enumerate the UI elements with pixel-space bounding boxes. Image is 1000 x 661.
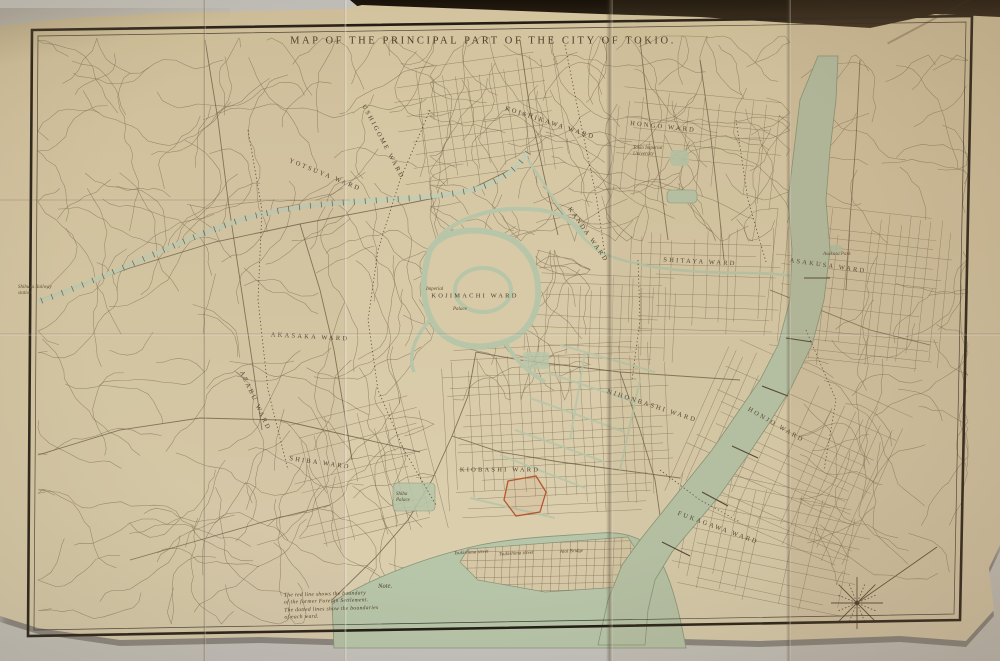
street-line bbox=[835, 451, 898, 538]
grid-street bbox=[611, 106, 619, 183]
grid-street bbox=[451, 362, 458, 490]
street-line bbox=[293, 38, 364, 90]
street-line bbox=[274, 543, 309, 589]
photograph-of-folded-map: MAP OF THE PRINCIPAL PART OF THE CITY OF… bbox=[0, 0, 1000, 661]
street-line bbox=[282, 82, 331, 128]
street-line bbox=[38, 538, 120, 586]
grid-street bbox=[415, 70, 431, 175]
street-line bbox=[244, 268, 318, 314]
street-line bbox=[314, 289, 403, 379]
street-line bbox=[101, 386, 163, 425]
grid-street bbox=[809, 419, 863, 538]
grid-street bbox=[472, 490, 650, 500]
street-line bbox=[744, 209, 778, 241]
street-line bbox=[120, 173, 179, 291]
grid-street bbox=[539, 281, 662, 286]
street-line bbox=[218, 350, 300, 451]
grid-street bbox=[663, 287, 666, 361]
street-line bbox=[194, 519, 307, 612]
street-line bbox=[859, 445, 925, 551]
street-line bbox=[100, 536, 180, 602]
street-line bbox=[38, 189, 77, 290]
grid-street bbox=[489, 378, 496, 490]
grid-street bbox=[799, 499, 823, 610]
street-line bbox=[358, 255, 395, 359]
grid-street bbox=[447, 385, 668, 397]
grid-street bbox=[677, 581, 840, 617]
street-line bbox=[896, 66, 958, 170]
main-road bbox=[846, 60, 860, 290]
street-line bbox=[141, 174, 238, 295]
main-road bbox=[640, 40, 668, 240]
grid-street bbox=[503, 69, 516, 159]
street-line bbox=[156, 358, 205, 372]
street-line bbox=[85, 173, 170, 197]
street-line bbox=[430, 176, 516, 236]
moat-arm bbox=[412, 318, 432, 372]
street-line bbox=[463, 340, 510, 400]
street-line bbox=[326, 230, 434, 277]
shinobazu-pond bbox=[667, 190, 697, 203]
street-line bbox=[912, 55, 968, 90]
street-line bbox=[334, 148, 416, 168]
grid-street bbox=[478, 74, 492, 163]
grid-street bbox=[357, 413, 388, 535]
street-line bbox=[949, 414, 968, 525]
street-line bbox=[310, 172, 365, 249]
grid-street bbox=[442, 369, 450, 512]
sumida-river bbox=[598, 56, 838, 645]
grid-street bbox=[928, 220, 944, 360]
street-line bbox=[244, 279, 318, 296]
grid-street bbox=[458, 426, 662, 438]
grid-street bbox=[559, 354, 567, 495]
street-line bbox=[882, 159, 968, 184]
street-line bbox=[568, 176, 678, 193]
street-line bbox=[219, 38, 240, 115]
grid-street bbox=[496, 357, 504, 490]
grid-street bbox=[323, 517, 429, 544]
street-line bbox=[38, 490, 195, 527]
street-line bbox=[875, 311, 968, 415]
street-line bbox=[63, 38, 149, 84]
street-line bbox=[747, 36, 790, 67]
grid-street bbox=[544, 293, 654, 298]
grid-street bbox=[705, 231, 709, 319]
grid-street bbox=[638, 344, 646, 491]
grid-street bbox=[598, 358, 607, 511]
block-grid bbox=[441, 339, 678, 520]
grid-street bbox=[288, 423, 416, 456]
grid-street bbox=[313, 436, 343, 550]
street-line bbox=[316, 149, 378, 200]
street-line bbox=[58, 207, 168, 252]
compass-north-ray bbox=[857, 547, 937, 603]
grid-street bbox=[906, 220, 921, 353]
canal bbox=[570, 352, 585, 440]
main-road bbox=[452, 436, 680, 478]
grid-street bbox=[527, 326, 651, 331]
street-line bbox=[602, 142, 650, 241]
street-line bbox=[651, 184, 754, 219]
street-line bbox=[659, 36, 689, 85]
street-line bbox=[737, 128, 771, 241]
grid-street bbox=[656, 305, 779, 310]
grid-street bbox=[669, 241, 672, 320]
street-line bbox=[38, 593, 141, 619]
grid-street bbox=[463, 415, 672, 427]
street-line bbox=[157, 482, 246, 562]
street-line bbox=[203, 515, 235, 575]
street-line bbox=[734, 88, 747, 145]
map-canvas bbox=[0, 0, 1000, 661]
canal bbox=[620, 380, 640, 470]
street-line bbox=[38, 109, 99, 140]
street-line bbox=[216, 487, 286, 594]
grid-street bbox=[628, 236, 631, 323]
street-line bbox=[117, 214, 215, 290]
street-line bbox=[812, 435, 869, 451]
street-line bbox=[195, 106, 211, 168]
grid-street bbox=[619, 138, 781, 155]
grid-street bbox=[638, 327, 772, 333]
grid-street bbox=[542, 273, 675, 278]
grid-street bbox=[858, 231, 871, 356]
grid-street bbox=[624, 86, 780, 103]
grid-street bbox=[649, 287, 653, 365]
street-line bbox=[851, 170, 889, 243]
grid-street bbox=[832, 430, 892, 566]
grid-street bbox=[588, 354, 597, 512]
grid-street bbox=[816, 407, 880, 548]
street-line bbox=[816, 527, 843, 585]
street-line bbox=[430, 112, 506, 133]
street-line bbox=[864, 359, 883, 469]
grid-street bbox=[455, 76, 468, 166]
foreign-settlement-red-outline bbox=[504, 476, 546, 516]
grid-street bbox=[697, 578, 824, 605]
grid-street bbox=[648, 232, 651, 324]
street-line bbox=[116, 186, 166, 253]
street-line bbox=[159, 116, 201, 189]
street-line bbox=[75, 53, 116, 94]
street-line bbox=[568, 126, 611, 198]
street-line bbox=[533, 172, 586, 204]
street-line bbox=[586, 36, 606, 105]
grid-street bbox=[467, 79, 480, 169]
grid-street bbox=[491, 63, 506, 165]
street-line bbox=[430, 45, 487, 102]
street-line bbox=[316, 39, 336, 133]
grid-street bbox=[639, 236, 644, 332]
street-line bbox=[110, 332, 154, 355]
street-line bbox=[226, 584, 292, 624]
street-line bbox=[351, 171, 378, 302]
street-line bbox=[278, 462, 303, 596]
street-line bbox=[203, 82, 304, 120]
grid-street bbox=[589, 290, 592, 362]
street-line bbox=[567, 138, 589, 206]
grid-street bbox=[610, 276, 614, 356]
street-line bbox=[267, 38, 312, 95]
street-line bbox=[193, 304, 240, 357]
street-line bbox=[73, 60, 223, 84]
street-line bbox=[191, 518, 234, 624]
main-road bbox=[38, 418, 420, 455]
street-line bbox=[203, 274, 215, 334]
street-line bbox=[230, 361, 370, 415]
street-line bbox=[198, 315, 238, 357]
hibiya-park bbox=[523, 352, 549, 369]
street-line bbox=[38, 428, 162, 454]
grid-street bbox=[629, 355, 638, 502]
street-line bbox=[129, 470, 215, 534]
grid-street bbox=[397, 67, 542, 88]
street-line bbox=[38, 420, 122, 468]
main-road bbox=[205, 40, 262, 430]
street-line bbox=[43, 339, 141, 456]
grid-street bbox=[656, 274, 776, 278]
street-line bbox=[550, 90, 625, 148]
street-line bbox=[588, 36, 620, 127]
street-line bbox=[352, 38, 435, 120]
street-line bbox=[118, 73, 139, 231]
street-line bbox=[896, 144, 968, 170]
street-line bbox=[527, 85, 560, 130]
street-line bbox=[38, 41, 118, 113]
block-grid bbox=[524, 272, 677, 365]
grid-street bbox=[620, 101, 630, 191]
grid-street bbox=[288, 396, 407, 426]
street-line bbox=[129, 520, 179, 538]
canal bbox=[530, 398, 625, 432]
grid-street bbox=[663, 362, 671, 480]
grid-street bbox=[672, 561, 843, 597]
grid-street bbox=[646, 342, 655, 494]
block-grid bbox=[628, 223, 782, 338]
grid-street bbox=[459, 458, 673, 470]
street-line bbox=[249, 57, 318, 170]
grid-street bbox=[692, 240, 695, 326]
grid-street bbox=[756, 105, 767, 204]
grid-street bbox=[672, 293, 676, 362]
grid-street bbox=[742, 489, 767, 600]
street-line bbox=[247, 431, 290, 503]
street-line bbox=[896, 283, 968, 295]
grid-street bbox=[634, 101, 787, 118]
grid-street bbox=[648, 242, 771, 247]
street-line bbox=[898, 389, 942, 421]
grid-street bbox=[532, 355, 651, 360]
street-line bbox=[83, 91, 231, 146]
street-line bbox=[166, 376, 247, 452]
ward-boundary-dotted bbox=[806, 330, 836, 470]
grid-street bbox=[758, 245, 761, 319]
street-line bbox=[606, 186, 644, 241]
street-line bbox=[833, 118, 906, 160]
grid-street bbox=[658, 234, 661, 317]
street-line bbox=[832, 323, 915, 360]
street-line bbox=[873, 442, 908, 564]
grid-street bbox=[936, 233, 951, 369]
street-line bbox=[504, 44, 578, 66]
imperial-palace-moat bbox=[424, 231, 538, 347]
street-line bbox=[38, 106, 108, 222]
ueno-park bbox=[670, 150, 689, 166]
street-line bbox=[657, 36, 741, 122]
street-line bbox=[856, 374, 923, 464]
street-line bbox=[93, 373, 125, 455]
street-line bbox=[719, 45, 744, 99]
grid-street bbox=[529, 314, 658, 320]
street-line bbox=[900, 167, 926, 220]
street-line bbox=[321, 208, 358, 372]
grid-street bbox=[619, 346, 629, 502]
street-line bbox=[65, 360, 210, 389]
street-line bbox=[631, 136, 770, 194]
street-line bbox=[331, 449, 427, 475]
street-line bbox=[352, 486, 396, 582]
street-line bbox=[280, 421, 327, 493]
grid-street bbox=[734, 229, 738, 322]
street-line bbox=[551, 36, 559, 75]
street-line bbox=[436, 78, 487, 189]
main-road bbox=[700, 60, 724, 260]
grid-street bbox=[874, 214, 891, 363]
street-line bbox=[158, 548, 260, 567]
grid-street bbox=[324, 417, 355, 540]
grid-street bbox=[630, 278, 633, 350]
grid-street bbox=[529, 55, 545, 165]
grid-street bbox=[385, 426, 411, 529]
railway-tick bbox=[343, 200, 344, 206]
main-road bbox=[300, 224, 352, 460]
grid-street bbox=[415, 52, 534, 69]
street-line bbox=[555, 55, 706, 73]
grid-street bbox=[743, 101, 754, 195]
grid-street bbox=[477, 358, 485, 491]
compass-center bbox=[855, 601, 858, 604]
shiba-palace-grounds bbox=[393, 483, 435, 511]
block-grid bbox=[610, 86, 789, 213]
grid-street bbox=[299, 407, 418, 438]
